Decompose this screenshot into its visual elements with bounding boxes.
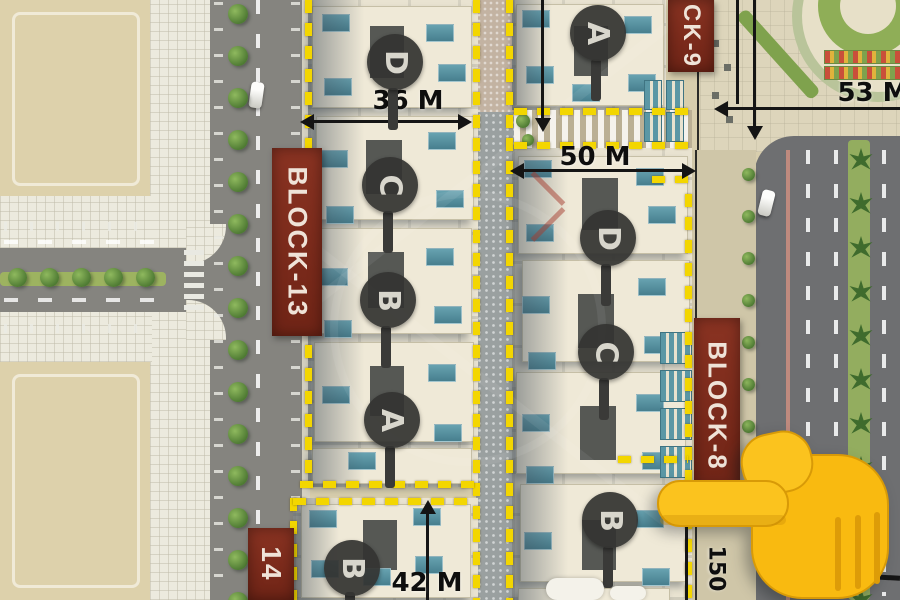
- unit-marker-label: C: [373, 174, 408, 196]
- unit-marker-label: D: [378, 50, 413, 75]
- bench: [724, 64, 731, 71]
- sidewalk-horizontal-lower: [0, 312, 152, 362]
- bench: [712, 92, 719, 99]
- unit-marker-label: A: [375, 408, 410, 431]
- tree-icon: [104, 268, 123, 287]
- parking-canopy: [644, 80, 662, 110]
- rooftop-pool: [320, 150, 348, 168]
- parking-canopy: [666, 112, 684, 142]
- rooftop-pool: [309, 510, 337, 528]
- marker-stem: [381, 326, 391, 368]
- unit-marker-c-block13: C: [362, 157, 418, 213]
- unit-marker-d-block8: D: [580, 210, 636, 266]
- site-plan-map: BLOCK-13 CK-9 BLOCK-8 14 36 M 50 M 53 M …: [0, 0, 900, 600]
- rooftop-pool: [434, 424, 462, 442]
- block-13-banner: BLOCK-13: [272, 148, 322, 336]
- arrow-left-icon: [300, 114, 314, 130]
- tree-icon: [228, 172, 248, 192]
- block-13-label: BLOCK-13: [282, 166, 313, 317]
- boundary-dash-spine-right: [506, 0, 513, 600]
- lot-path-outline: [12, 374, 140, 588]
- crosswalk: [184, 250, 204, 310]
- lane-marking: [4, 298, 164, 302]
- tree-icon: [228, 340, 248, 360]
- arrow-down-icon: [535, 118, 551, 132]
- tree-icon: [228, 298, 248, 318]
- bench: [726, 116, 733, 123]
- parking-ticks: [4, 324, 154, 333]
- shrub-icon: [742, 168, 755, 181]
- unit-marker-label: B: [335, 557, 370, 580]
- unit-marker-label: B: [371, 289, 406, 312]
- marker-stem: [383, 211, 393, 253]
- rooftop-pool: [428, 364, 456, 382]
- arrow-right-icon: [682, 163, 696, 179]
- rooftop-pool: [326, 206, 354, 224]
- tree-icon: [516, 114, 530, 128]
- tree-icon: [228, 256, 248, 276]
- rooftop-pool: [526, 66, 554, 84]
- rooftop-pool: [526, 224, 554, 242]
- tree-icon: [228, 46, 248, 66]
- tree-icon: [136, 268, 155, 287]
- unit-marker-b-block8: B: [582, 492, 638, 548]
- dimension-top-line: [541, 0, 544, 120]
- dimension-vertical-line: [753, 0, 756, 126]
- tree-icon: [228, 214, 248, 234]
- tree-icon: [228, 424, 248, 444]
- rooftop-pool: [624, 16, 652, 34]
- rooftop-pool: [426, 24, 454, 42]
- dimension-42m-label: 42 M: [382, 568, 472, 598]
- shrub-icon: [742, 294, 755, 307]
- unit-marker-label: D: [591, 226, 626, 251]
- tree-icon: [228, 130, 248, 150]
- shrub-icon: [742, 210, 755, 223]
- arrow-right-icon: [458, 114, 472, 130]
- marker-stem: [591, 59, 601, 101]
- rooftop-pool: [434, 306, 462, 324]
- arrow-left-icon: [510, 163, 524, 179]
- rooftop-pool: [322, 14, 350, 32]
- arrow-left-icon: [714, 101, 728, 117]
- dimension-50m-label: 50 M: [535, 142, 655, 172]
- rooftop-pool: [522, 10, 550, 28]
- rooftop-pool: [428, 132, 456, 150]
- tree-icon: [8, 268, 27, 287]
- marker-stem: [599, 378, 609, 420]
- block-14-banner: 14: [248, 528, 294, 600]
- dimension-36m-line: [312, 120, 462, 123]
- dimension-53m-label: 53 M: [818, 78, 900, 108]
- marker-stem: [601, 264, 611, 306]
- rooftop-pool: [438, 64, 466, 82]
- parking-canopy: [644, 112, 662, 142]
- block-9-banner: CK-9: [668, 0, 714, 72]
- unit-marker-b-block13: B: [360, 272, 416, 328]
- tree-icon: [228, 508, 248, 528]
- unit-marker-b-block14: B: [324, 540, 380, 596]
- pointer-hand-icon: [640, 425, 900, 600]
- sidewalk-vertical-upper: [150, 0, 212, 248]
- parking-canopy: [666, 80, 684, 110]
- rooftop-pool: [524, 532, 552, 550]
- rooftop-pool: [638, 278, 666, 296]
- rooftop-pool: [526, 466, 554, 484]
- unit-marker-d-block13: D: [367, 34, 423, 90]
- rooftop-pool: [522, 414, 550, 432]
- tree-icon: [40, 268, 59, 287]
- boundary-dash-block14-top: [293, 498, 476, 505]
- rooftop-pool: [648, 206, 676, 224]
- rooftop-pool: [324, 320, 352, 338]
- shrub-icon: [742, 378, 755, 391]
- unit-marker-label: C: [589, 341, 624, 363]
- unit-marker-label: A: [581, 21, 616, 44]
- sidewalk-vertical-lower: [150, 312, 212, 600]
- rooftop-pool: [320, 268, 348, 286]
- dimension-50m-line: [520, 169, 686, 172]
- rooftop-pool: [426, 248, 454, 266]
- tree-icon: [228, 466, 248, 486]
- dimension-53m-line: [724, 107, 900, 110]
- tree-icon: [228, 4, 248, 24]
- block-14-label: 14: [255, 546, 287, 581]
- marker-stem: [388, 88, 398, 130]
- arrow-up-icon: [420, 500, 436, 514]
- boundary-dash-spine-left: [473, 0, 480, 600]
- parking-ticks: [4, 222, 154, 231]
- tree-icon: [228, 88, 248, 108]
- lot-path-outline: [12, 12, 140, 186]
- rooftop-pool: [348, 452, 376, 470]
- arrow-down-icon: [747, 126, 763, 140]
- dimension-vertical-line: [736, 0, 739, 104]
- tree-icon: [72, 268, 91, 287]
- unit-marker-label: B: [593, 509, 628, 532]
- sand-lot-bottom: [0, 362, 152, 600]
- flower-planter: [824, 50, 900, 64]
- unit-marker-a-block9: A: [570, 5, 626, 61]
- rooftop-pool: [528, 352, 556, 370]
- block-9-label: CK-9: [677, 4, 705, 68]
- tree-icon: [228, 550, 248, 570]
- parking-ticks: [214, 2, 223, 598]
- rooftop-pool: [322, 386, 350, 404]
- white-callout-partial: [546, 578, 604, 600]
- shrub-icon: [742, 252, 755, 265]
- dimension-36m-label: 36 M: [348, 86, 468, 116]
- marker-stem: [603, 546, 613, 588]
- tree-icon: [228, 382, 248, 402]
- sand-lot-top: [0, 0, 152, 198]
- unit-marker-c-block8: C: [578, 324, 634, 380]
- building-core: [580, 406, 616, 460]
- rooftop-pool: [436, 190, 464, 208]
- marker-stem: [385, 446, 395, 488]
- rooftop-pool: [522, 296, 550, 314]
- lane-marking: [4, 240, 164, 244]
- shrub-icon: [742, 336, 755, 349]
- unit-marker-a-block13: A: [364, 392, 420, 448]
